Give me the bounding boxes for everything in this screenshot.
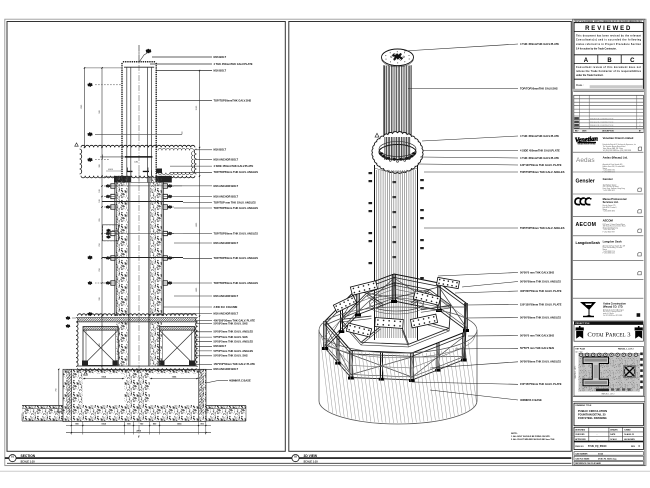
svg-text:M16 BOLT: M16 BOLT (214, 68, 227, 72)
svg-text:Tel: (853) 2882 8888 Fax: (85: Tel: (853) 2882 8888 Fax: (853) 2882 888… (603, 150, 632, 152)
svg-text:DWG NO: DWG NO (575, 446, 584, 448)
svg-text:330: 330 (99, 297, 101, 300)
svg-text:50*50*5mm THK GALV. SHS: 50*50*5mm THK GALV. SHS (214, 335, 248, 339)
svg-text:status referred to in Pro: status referred to in Project Procedure … (576, 43, 642, 46)
svg-text:AECOM: AECOM (603, 219, 614, 223)
svg-text:T +852 2860 3022: T +852 2860 3022 (603, 190, 615, 192)
svg-text:500: 500 (99, 110, 101, 113)
svg-text:50*50*50mm THK GALV. ANGLES: 50*50*50mm THK GALV. ANGLES (520, 360, 561, 364)
svg-text:5YUE_FQ_S5010: 5YUE_FQ_S5010 (588, 446, 607, 448)
svg-text:TOP/TOP50mm THK GALV. ANGLES: TOP/TOP50mm THK GALV. ANGLES (214, 231, 259, 235)
svg-text:M16 ANCHOR BOLT: M16 ANCHOR BOLT (214, 294, 239, 298)
svg-text:(Macau) CO. LTD.: (Macau) CO. LTD. (603, 305, 623, 308)
svg-text:SECTION: SECTION (21, 454, 36, 458)
svg-text:5YUE_FD_S5010.dwg: 5YUE_FD_S5010.dwg (598, 458, 616, 460)
svg-text:100: 100 (99, 189, 101, 192)
svg-text:SCALE 1:10: SCALE 1:10 (304, 460, 319, 463)
svg-text:Macau: Macau (603, 249, 608, 251)
svg-text:under the Trade Contract.: under the Trade Contract. (576, 74, 604, 77)
svg-text:400MM R.C BASE: 400MM R.C BASE (229, 378, 251, 382)
svg-text:PARCEL 1, LOT 2: PARCEL 1, LOT 2 (618, 348, 634, 351)
svg-text:T +853 2833 1782: T +853 2833 1782 (603, 170, 615, 172)
svg-text:AECOM: AECOM (576, 222, 597, 228)
svg-text:T +852 3922 9000: T +852 3922 9000 (603, 229, 615, 231)
svg-text:REV: REV (631, 446, 636, 448)
svg-text:4 THK 450mmTHK GALV.PLATE: 4 THK 450mmTHK GALV.PLATE (214, 62, 253, 66)
svg-text:4 SIDE 450mmTHK GALV.PLATE: 4 SIDE 450mmTHK GALV.PLATE (214, 164, 254, 168)
svg-text:4 THK 450mmTHK GALV.PLATE: 4 THK 450mmTHK GALV.PLATE (520, 42, 559, 46)
svg-text:250: 250 (99, 243, 101, 246)
svg-text:4 THK 450mmTHK GALV.PLATE: 4 THK 450mmTHK GALV.PLATE (520, 134, 559, 138)
svg-text:14-AUG-15: 14-AUG-15 (624, 433, 634, 436)
svg-text:4 THK 450mmTHK GALV.PLATE: 4 THK 450mmTHK GALV.PLATE (520, 156, 559, 160)
svg-text:4-M16: 4-M16 (108, 169, 113, 171)
svg-text:2. ALL FILLET WELDED SHOULD BE: 2. ALL FILLET WELDED SHOULD BE 3mm THK. (511, 438, 555, 441)
svg-text:50*50*50mm THK GALV. ANGLES: 50*50*50mm THK GALV. ANGLES (520, 279, 561, 283)
svg-text:DRAWING TITLE: DRAWING TITLE (576, 404, 592, 407)
svg-text:Gensler: Gensler (576, 179, 595, 185)
svg-text:4 SIDE 450mmTHK GALV.PLATE: 4 SIDE 450mmTHK GALV.PLATE (520, 148, 560, 152)
svg-text:Langdon Seah: Langdon Seah (603, 240, 622, 244)
svg-text:100: 100 (99, 199, 101, 202)
svg-text:T +853 2878 3396: T +853 2878 3396 (603, 211, 615, 213)
svg-text:PUBLIC CIRCULATION: PUBLIC CIRCULATION (578, 409, 607, 413)
svg-text:TOP/TOP50mm THK GALV. ANGLES: TOP/TOP50mm THK GALV. ANGLES (520, 226, 565, 230)
svg-text:DRAWN: DRAWN (610, 429, 618, 432)
svg-text:Macau: Macau (603, 209, 608, 211)
svg-text:Consultant review of this: Consultant review of this document does … (576, 66, 641, 69)
svg-text:S.WND: S.WND (624, 430, 631, 432)
svg-text:TOP/TOP mm THK GALV. ANGLES: TOP/TOP mm THK GALV. ANGLES (214, 200, 257, 204)
svg-text:ISSUE FOR CONSTRUCTION: ISSUE FOR CONSTRUCTION (590, 125, 614, 127)
svg-text:This document has been rev: This document has been revised by the re… (576, 34, 641, 37)
svg-text:C: C (630, 58, 635, 64)
svg-text:1-M4: 1-M4 (134, 161, 138, 163)
svg-text:FOR STEEL DRAWING: FOR STEEL DRAWING (578, 416, 607, 420)
svg-text:5.4 for action by the Tra: 5.4 for action by the Trade Contractor. (576, 47, 617, 50)
svg-text:Date :: Date : (576, 83, 584, 87)
svg-text:Rua de Xangai 175: Rua de Xangai 175 (603, 205, 616, 207)
svg-text:TOP/TOP50mm THK GALV. ANGLES: TOP/TOP50mm THK GALV. ANGLES (520, 170, 565, 174)
svg-text:CHECKED: CHECKED (575, 434, 585, 436)
svg-text:M16 ANCHOR BOLT: M16 ANCHOR BOLT (214, 184, 239, 188)
svg-text:M16 BOLT: M16 BOLT (214, 55, 227, 59)
svg-text:M16 BOLT: M16 BOLT (214, 148, 227, 152)
svg-text:T +853 2833 1710: T +853 2833 1710 (603, 251, 615, 253)
svg-text:REFERENCE CAD FILE NAME: REFERENCE CAD FILE NAME (575, 462, 601, 465)
svg-text:B: B (607, 58, 612, 64)
svg-text:1. ALL BOLT SHOULD BE FIXING O: 1. ALL BOLT SHOULD BE FIXING ON SITE. (511, 435, 551, 438)
svg-text:ISSUE FOR CONSTRUCTION: ISSUE FOR CONSTRUCTION (590, 118, 614, 120)
svg-text:relieve the Trade Contracto: relieve the Trade Contractor of its resp… (576, 70, 642, 73)
svg-text:300: 300 (99, 164, 101, 167)
svg-text:50*50*50mm THK GALV. ANGLES: 50*50*50mm THK GALV. ANGLES (520, 316, 561, 320)
svg-text:# 800 R.C COLUMN: # 800 R.C COLUMN (214, 305, 238, 309)
svg-text:50*50*5 mm THK GALV.SHS: 50*50*5 mm THK GALV.SHS (520, 334, 554, 338)
svg-text:M16 ANCHOR BOLT: M16 ANCHOR BOLT (214, 367, 239, 371)
svg-text:andar J-L, Macau: andar J-L, Macau (603, 313, 614, 315)
svg-text:50*50*5 mm THK GALV.SHS: 50*50*5 mm THK GALV.SHS (520, 346, 554, 350)
svg-text:50*50*5mm THK GALV. ANGLES: 50*50*5mm THK GALV. ANGLES (214, 340, 254, 344)
svg-text:AS SHOWN: AS SHOWN (624, 438, 635, 441)
svg-text:SCALE 1:10: SCALE 1:10 (21, 460, 36, 463)
svg-text:KEY PLAN: KEY PLAN (576, 348, 586, 351)
svg-text:APPROVED: APPROVED (575, 438, 586, 441)
svg-text:TOP/TOP50mm THK GALV. ANGLES: TOP/TOP50mm THK GALV. ANGLES (214, 206, 259, 210)
svg-text:Aedas (Macau) Ltd.: Aedas (Macau) Ltd. (603, 155, 628, 159)
svg-text:TOP/TOP50mm THK GALV. ANGLES: TOP/TOP50mm THK GALV. ANGLES (214, 256, 259, 260)
svg-text:Venetian Orient Limited: Venetian Orient Limited (603, 136, 634, 140)
svg-text:REVIEWED: REVIEWED (585, 26, 632, 32)
svg-text:F +853 2833 1415: F +853 2833 1415 (603, 171, 615, 173)
svg-text:A: A (584, 58, 589, 64)
svg-text:250: 250 (99, 268, 101, 271)
svg-text:TOP/TOP50mmTHK GALV.SHS: TOP/TOP50mmTHK GALV.SHS (520, 86, 558, 90)
svg-text:DESIGNED: DESIGNED (575, 430, 586, 432)
svg-text:LangdonSeah: LangdonSeah (576, 241, 601, 245)
svg-text:150*150*50mm THK GALV. PLATE: 150*150*50mm THK GALV. PLATE (520, 382, 562, 386)
svg-text:NOTE:: NOTE: (511, 433, 518, 435)
svg-text:CAD FILE NAME: CAD FILE NAME (575, 457, 590, 460)
svg-text:TOP/TOP50mm THK GALV. ANGLES: TOP/TOP50mm THK GALV. ANGLES (214, 281, 259, 285)
svg-text:150*150*50mm THK GALV. PLATE: 150*150*50mm THK GALV. PLATE (214, 362, 256, 366)
svg-text:Tel: 2875 3828 Fax: 2875 382: Tel: 2875 3828 Fax: 2875 3826 (603, 315, 622, 317)
svg-text:CAD NUMBER: CAD NUMBER (575, 453, 588, 456)
svg-text:Gensler: Gensler (603, 177, 614, 181)
svg-text:Aedas: Aedas (576, 157, 595, 164)
svg-text:Services Ltd.: Services Ltd. (603, 200, 619, 204)
svg-text:F +852 3922 9797: F +852 3922 9797 (603, 231, 615, 233)
svg-text:COTAI PARCEL 3: COTAI PARCEL 3 (587, 331, 631, 338)
svg-text:50*50*5mm THK GALV. SHS: 50*50*5mm THK GALV. SHS (214, 321, 248, 325)
svg-text:TOP/TOP50mm THK GALV. ANGLES: TOP/TOP50mm THK GALV. ANGLES (214, 170, 259, 174)
svg-text:M16 ANCHOR BOLT: M16 ANCHOR BOLT (214, 194, 239, 198)
svg-text:M16 ANCHOR BOLT: M16 ANCHOR BOLT (214, 241, 239, 245)
svg-text:3D VIEW: 3D VIEW (304, 454, 318, 458)
svg-text:120*120*50mm THK GALV. PLATE: 120*120*50mm THK GALV. PLATE (520, 163, 562, 167)
svg-text:SCALE: SCALE (610, 438, 617, 441)
svg-text:ISSUE FOR CONSTRUCTION: ISSUE FOR CONSTRUCTION (590, 122, 614, 124)
svg-text:FOUNTAIN DETAIL 25: FOUNTAIN DETAIL 25 (578, 412, 606, 416)
svg-text:50*50*5 mm THK GALV.SHS: 50*50*5 mm THK GALV.SHS (520, 270, 554, 274)
svg-text:M16 BOLT: M16 BOLT (214, 344, 227, 348)
svg-text:M16 ANCHOR BOLT: M16 ANCHOR BOLT (214, 158, 239, 162)
svg-text:150*150*50mm THK GALV. PLATE: 150*150*50mm THK GALV. PLATE (520, 302, 562, 306)
svg-text:M16 ANCHOR BOLT: M16 ANCHOR BOLT (214, 311, 239, 315)
svg-text:50*50*5mm THK GALV. SHS: 50*50*5mm THK GALV. SHS (214, 354, 248, 358)
svg-text:400*200*50mm THK GALV. PLATE: 400*200*50mm THK GALV. PLATE (520, 289, 562, 293)
svg-text:265: 265 (99, 218, 101, 221)
svg-text:50*50*5mm THK GALV. ANGLES: 50*50*5mm THK GALV. ANGLES (214, 330, 254, 334)
svg-text:51124: 51124 (598, 453, 603, 456)
svg-text:F +853 2833 1532: F +853 2833 1532 (603, 253, 615, 255)
svg-text:Consultants(s) and is accor: Consultants(s) and is accorded the follo… (576, 39, 642, 42)
svg-text:TOP/TOP50mmTHK GALV.SHS: TOP/TOP50mmTHK GALV.SHS (214, 99, 252, 103)
svg-text:50*50*5mm THK GALV. ANGLES: 50*50*5mm THK GALV. ANGLES (214, 349, 254, 353)
svg-text:400MM R.C BASE: 400MM R.C BASE (520, 398, 542, 402)
svg-text:Kwun Tong, Kowloon, Hong Kong: Kwun Tong, Kowloon, Hong Kong (603, 188, 625, 190)
svg-text:Macau: Macau (603, 168, 608, 170)
svg-text:DATE: DATE (610, 433, 616, 436)
